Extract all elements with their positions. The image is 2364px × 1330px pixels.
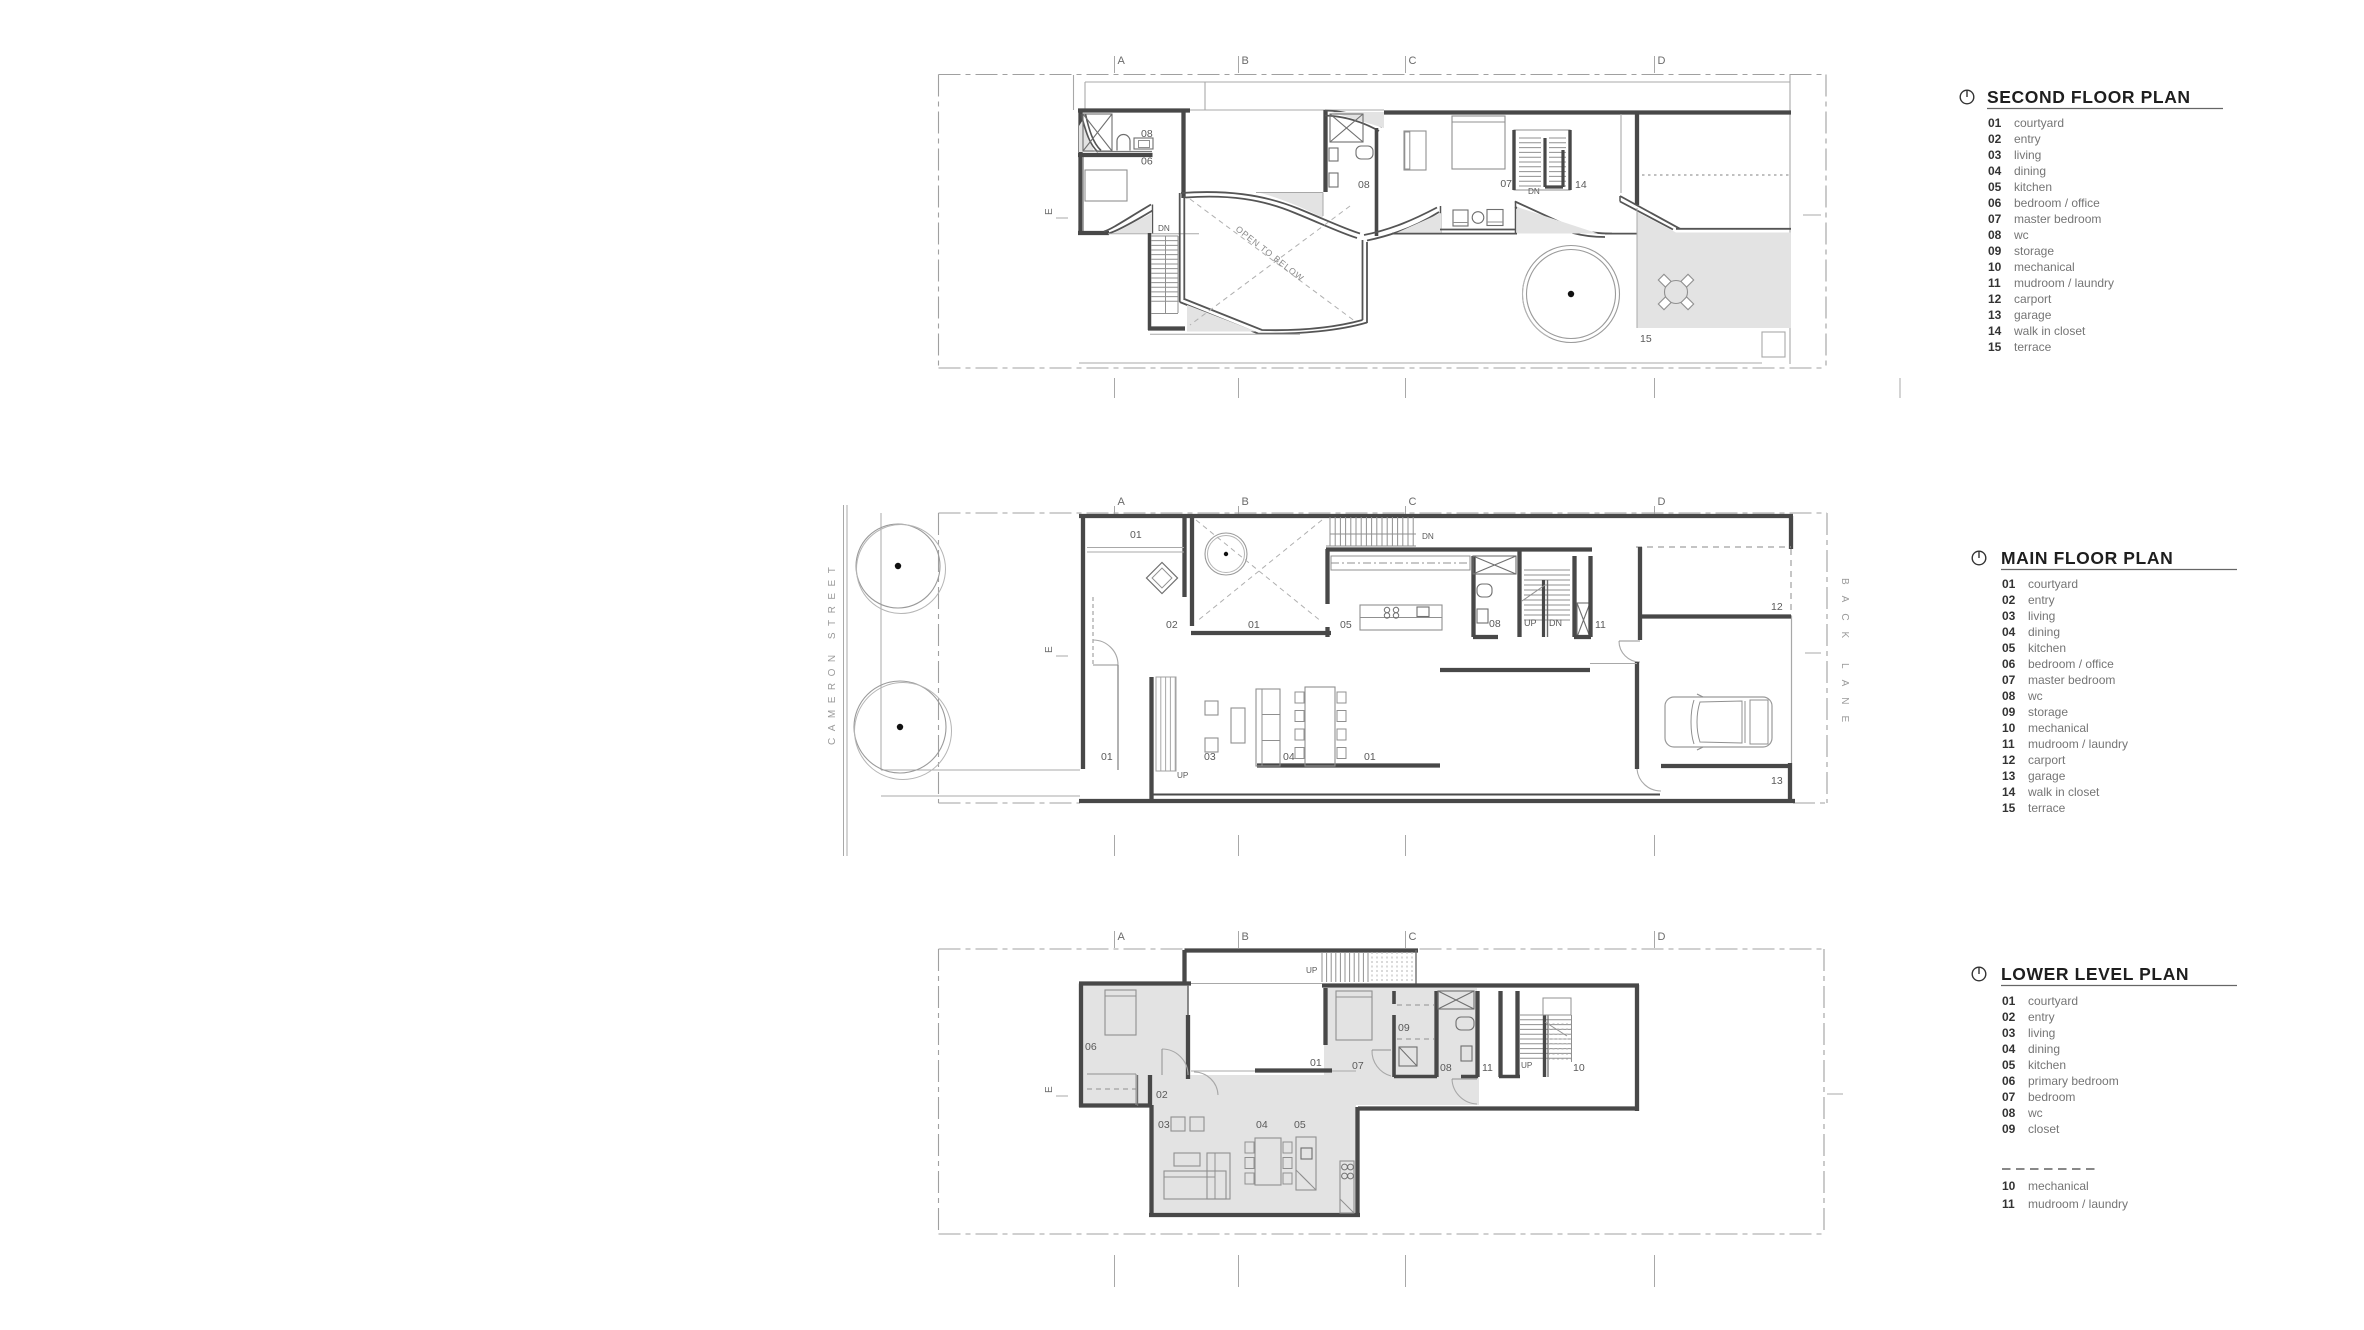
svg-text:05: 05 [2002, 641, 2016, 655]
svg-text:11: 11 [1988, 276, 2001, 290]
svg-text:08: 08 [2002, 1106, 2016, 1120]
svg-text:12: 12 [2002, 753, 2016, 767]
svg-text:10: 10 [2002, 721, 2016, 735]
svg-text:06: 06 [1141, 156, 1153, 168]
svg-text:courtyard: courtyard [2014, 116, 2064, 130]
svg-text:03: 03 [1988, 148, 2002, 162]
svg-text:13: 13 [1771, 775, 1783, 787]
svg-text:kitchen: kitchen [2014, 180, 2052, 194]
svg-text:BACK LANE: BACK LANE [1839, 578, 1850, 733]
svg-text:06: 06 [2002, 657, 2016, 671]
svg-text:11: 11 [2002, 1197, 2015, 1211]
svg-text:04: 04 [1283, 751, 1295, 763]
svg-text:C: C [1409, 931, 1417, 943]
svg-text:storage: storage [2014, 244, 2054, 258]
svg-text:06: 06 [1085, 1041, 1097, 1053]
svg-text:walk in closet: walk in closet [2013, 324, 2086, 338]
svg-text:OPEN TO BELOW: OPEN TO BELOW [1234, 224, 1306, 284]
svg-text:entry: entry [2028, 593, 2055, 607]
svg-text:living: living [2028, 609, 2055, 623]
svg-text:12: 12 [1771, 601, 1783, 613]
svg-text:B: B [1242, 496, 1249, 508]
svg-text:UP: UP [1177, 771, 1189, 780]
svg-text:E: E [1044, 646, 1055, 653]
svg-text:CAMERON STREET: CAMERON STREET [827, 561, 838, 745]
svg-text:08: 08 [1489, 618, 1501, 630]
svg-text:01: 01 [1130, 529, 1142, 541]
svg-text:MAIN FLOOR PLAN: MAIN FLOOR PLAN [2001, 548, 2173, 568]
svg-text:08: 08 [1988, 228, 2002, 242]
svg-text:D: D [1658, 931, 1666, 943]
svg-text:mechanical: mechanical [2014, 260, 2075, 274]
svg-text:C: C [1409, 55, 1417, 67]
svg-text:A: A [1118, 931, 1126, 943]
svg-text:E: E [1044, 1086, 1055, 1093]
svg-text:05: 05 [1340, 619, 1352, 631]
svg-text:kitchen: kitchen [2028, 641, 2066, 655]
svg-text:14: 14 [1575, 179, 1587, 191]
svg-text:DN: DN [1158, 224, 1170, 233]
svg-text:entry: entry [2014, 132, 2041, 146]
svg-text:01: 01 [1101, 751, 1113, 763]
svg-text:SECOND FLOOR PLAN: SECOND FLOOR PLAN [1987, 87, 2191, 107]
svg-text:08: 08 [2002, 689, 2016, 703]
svg-text:DN: DN [1528, 187, 1540, 196]
svg-text:03: 03 [1158, 1119, 1170, 1131]
svg-text:terrace: terrace [2028, 801, 2066, 815]
svg-text:05: 05 [1294, 1119, 1306, 1131]
svg-text:dining: dining [2014, 164, 2046, 178]
svg-text:DN: DN [1422, 532, 1434, 541]
svg-text:01: 01 [1248, 619, 1260, 631]
svg-text:06: 06 [2002, 1074, 2016, 1088]
svg-text:05: 05 [2002, 1058, 2016, 1072]
svg-text:bedroom / office: bedroom / office [2028, 657, 2114, 671]
svg-text:05: 05 [1988, 180, 2002, 194]
svg-text:04: 04 [2002, 625, 2016, 639]
svg-text:wc: wc [2013, 228, 2029, 242]
svg-text:07: 07 [2002, 1090, 2016, 1104]
svg-text:09: 09 [2002, 705, 2016, 719]
svg-text:01: 01 [1310, 1057, 1322, 1069]
svg-text:02: 02 [1988, 132, 2002, 146]
svg-text:07: 07 [1988, 212, 2002, 226]
svg-text:14: 14 [2002, 785, 2016, 799]
svg-text:09: 09 [1988, 244, 2002, 258]
svg-text:living: living [2014, 148, 2041, 162]
svg-text:07: 07 [1352, 1060, 1364, 1072]
svg-text:13: 13 [1988, 308, 2002, 322]
svg-text:12: 12 [1988, 292, 2002, 306]
svg-text:bedroom: bedroom [2028, 1090, 2075, 1104]
svg-text:01: 01 [2002, 577, 2016, 591]
svg-text:09: 09 [2002, 1122, 2016, 1136]
svg-text:dining: dining [2028, 1042, 2060, 1056]
svg-text:garage: garage [2028, 769, 2066, 783]
svg-text:wc: wc [2027, 689, 2043, 703]
svg-text:02: 02 [2002, 1010, 2016, 1024]
svg-text:02: 02 [1156, 1089, 1168, 1101]
svg-text:08: 08 [1358, 179, 1370, 191]
svg-text:dining: dining [2028, 625, 2060, 639]
svg-text:02: 02 [2002, 593, 2016, 607]
svg-text:09: 09 [1398, 1022, 1410, 1034]
svg-text:closet: closet [2028, 1122, 2060, 1136]
svg-text:C: C [1409, 496, 1417, 508]
svg-text:B: B [1242, 55, 1249, 67]
svg-text:06: 06 [1988, 196, 2002, 210]
svg-text:10: 10 [2002, 1179, 2016, 1193]
svg-text:04: 04 [2002, 1042, 2016, 1056]
svg-text:storage: storage [2028, 705, 2068, 719]
svg-text:10: 10 [1988, 260, 2002, 274]
svg-text:E: E [1044, 208, 1055, 215]
svg-text:D: D [1658, 496, 1666, 508]
svg-text:wc: wc [2027, 1106, 2043, 1120]
svg-text:15: 15 [1988, 340, 2002, 354]
svg-text:A: A [1118, 55, 1126, 67]
svg-text:UP: UP [1521, 1061, 1533, 1070]
svg-text:15: 15 [1640, 333, 1652, 345]
svg-text:mechanical: mechanical [2028, 1179, 2089, 1193]
svg-text:courtyard: courtyard [2028, 994, 2078, 1008]
svg-text:walk in closet: walk in closet [2027, 785, 2100, 799]
svg-text:LOWER LEVEL PLAN: LOWER LEVEL PLAN [2001, 964, 2189, 984]
svg-text:UP: UP [1524, 618, 1537, 628]
svg-text:04: 04 [1256, 1119, 1268, 1131]
svg-text:DN: DN [1549, 618, 1562, 628]
svg-text:07: 07 [1500, 178, 1512, 190]
svg-text:courtyard: courtyard [2028, 577, 2078, 591]
svg-text:kitchen: kitchen [2028, 1058, 2066, 1072]
svg-text:01: 01 [2002, 994, 2016, 1008]
svg-text:garage: garage [2014, 308, 2052, 322]
svg-text:11: 11 [1482, 1062, 1493, 1074]
svg-text:B: B [1242, 931, 1249, 943]
svg-text:03: 03 [2002, 1026, 2016, 1040]
svg-text:01: 01 [1988, 116, 2002, 130]
svg-text:A: A [1118, 496, 1126, 508]
svg-text:mudroom / laundry: mudroom / laundry [2028, 737, 2128, 751]
svg-text:03: 03 [2002, 609, 2016, 623]
svg-text:04: 04 [1988, 164, 2002, 178]
svg-text:carport: carport [2014, 292, 2052, 306]
svg-text:14: 14 [1988, 324, 2002, 338]
svg-text:01: 01 [1364, 751, 1376, 763]
svg-text:11: 11 [1595, 619, 1606, 631]
svg-text:15: 15 [2002, 801, 2016, 815]
svg-text:D: D [1658, 55, 1666, 67]
svg-text:carport: carport [2028, 753, 2066, 767]
svg-text:terrace: terrace [2014, 340, 2052, 354]
svg-text:mudroom / laundry: mudroom / laundry [2014, 276, 2114, 290]
svg-text:07: 07 [2002, 673, 2016, 687]
svg-text:master bedroom: master bedroom [2014, 212, 2101, 226]
svg-text:11: 11 [2002, 737, 2015, 751]
svg-text:entry: entry [2028, 1010, 2055, 1024]
svg-text:02: 02 [1166, 619, 1178, 631]
svg-text:03: 03 [1204, 751, 1216, 763]
svg-text:13: 13 [2002, 769, 2016, 783]
svg-text:mudroom / laundry: mudroom / laundry [2028, 1197, 2128, 1211]
svg-text:primary bedroom: primary bedroom [2028, 1074, 2119, 1088]
svg-text:master bedroom: master bedroom [2028, 673, 2115, 687]
svg-text:08: 08 [1440, 1062, 1452, 1074]
svg-text:08: 08 [1141, 128, 1153, 140]
svg-text:10: 10 [1573, 1062, 1585, 1074]
svg-text:mechanical: mechanical [2028, 721, 2089, 735]
svg-text:UP: UP [1306, 966, 1318, 975]
svg-text:living: living [2028, 1026, 2055, 1040]
svg-text:bedroom / office: bedroom / office [2014, 196, 2100, 210]
